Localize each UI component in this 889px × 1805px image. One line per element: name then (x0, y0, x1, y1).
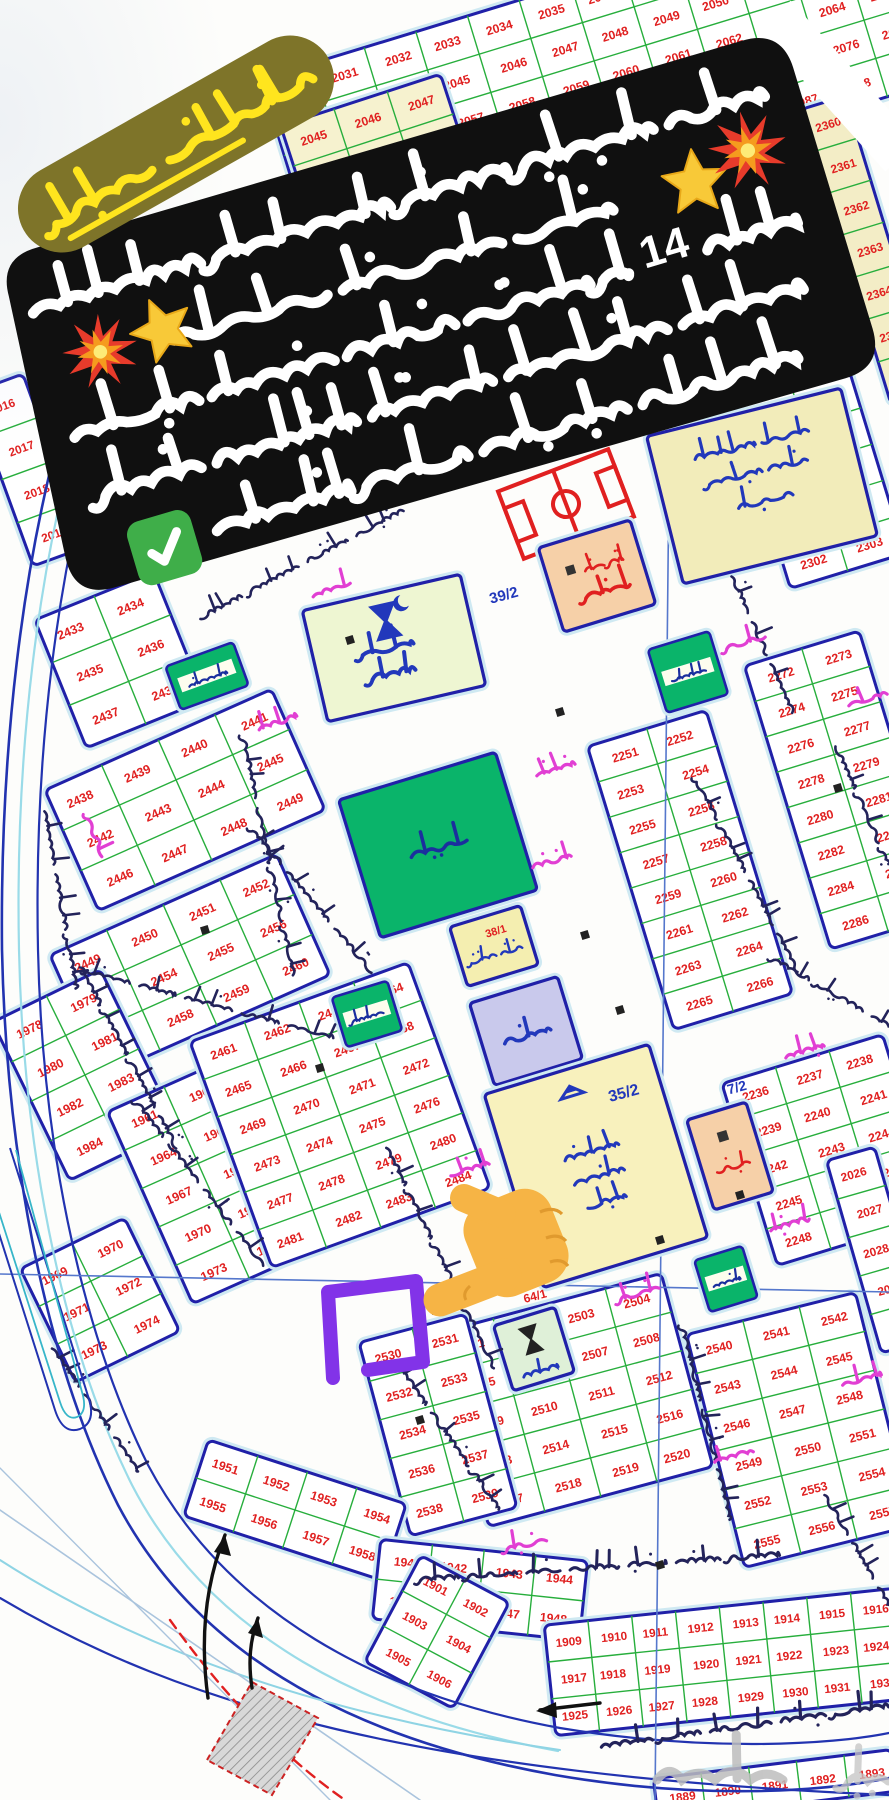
svg-text:1925: 1925 (561, 1707, 589, 1724)
svg-text:1932: 1932 (869, 1675, 889, 1692)
svg-text:1929: 1929 (737, 1689, 765, 1706)
svg-text:1914: 1914 (773, 1610, 801, 1627)
svg-text:1915: 1915 (818, 1606, 846, 1623)
svg-text:1924: 1924 (862, 1638, 889, 1655)
svg-text:1917: 1917 (560, 1670, 588, 1687)
svg-text:1912: 1912 (687, 1619, 715, 1636)
svg-text:1931: 1931 (823, 1680, 851, 1697)
svg-text:1919: 1919 (644, 1661, 672, 1678)
svg-text:1922: 1922 (776, 1647, 804, 1664)
svg-text:1920: 1920 (692, 1656, 720, 1673)
svg-text:1923: 1923 (822, 1642, 850, 1659)
svg-text:1944: 1944 (545, 1570, 574, 1587)
svg-text:1921: 1921 (735, 1652, 763, 1669)
svg-text:1909: 1909 (555, 1633, 583, 1650)
svg-text:1926: 1926 (605, 1702, 633, 1719)
svg-text:1928: 1928 (691, 1693, 719, 1710)
svg-text:1918: 1918 (599, 1666, 627, 1683)
svg-text:1911: 1911 (642, 1624, 669, 1641)
svg-text:1930: 1930 (782, 1684, 810, 1701)
svg-text:1927: 1927 (648, 1698, 676, 1715)
svg-text:1913: 1913 (732, 1615, 760, 1632)
svg-text:1910: 1910 (600, 1629, 628, 1646)
svg-text:1916: 1916 (862, 1601, 889, 1618)
